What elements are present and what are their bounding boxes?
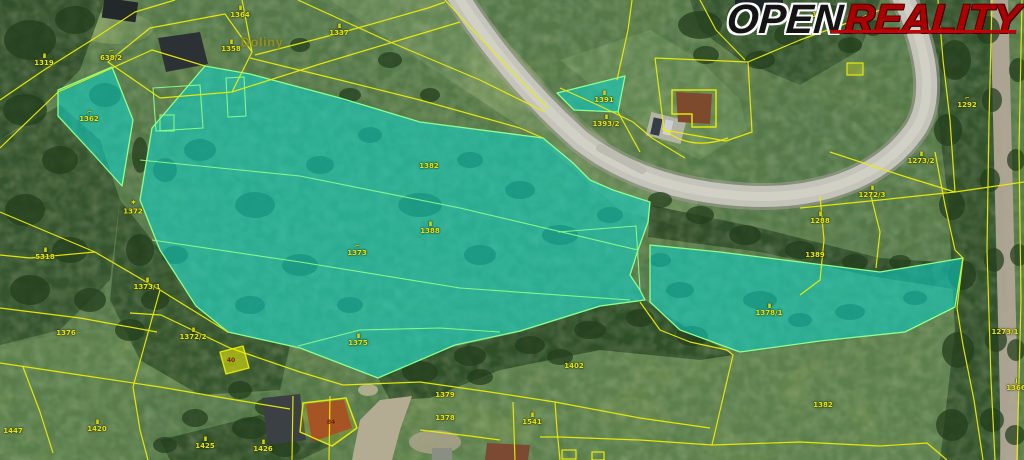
map-canvas[interactable]: II1364II1358⌐638/2II1319II1337⌐1362*1372… [0, 0, 1024, 460]
openreality-logo: OPEN REALITY [726, 0, 1023, 41]
dirt-track [999, 0, 1009, 460]
building-roof-red [485, 443, 530, 460]
logo-text-open: OPEN [726, 0, 845, 41]
building-roof-red [676, 92, 712, 124]
satellite-map [0, 0, 1024, 460]
building-roof [432, 448, 452, 460]
building-outline [220, 346, 249, 374]
logo-underline [830, 30, 1016, 33]
logo-text-reality: REALITY [844, 0, 1022, 41]
building-roof [262, 394, 306, 445]
place-label-doliny: Doliny [241, 35, 284, 50]
